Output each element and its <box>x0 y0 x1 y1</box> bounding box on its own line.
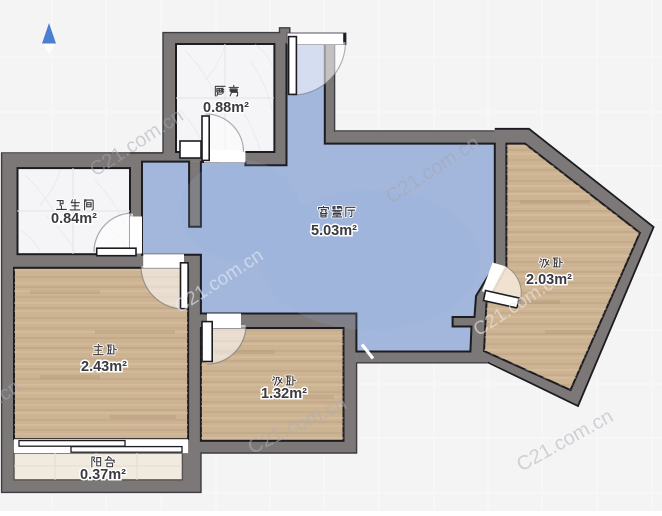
svg-text:0.84m²: 0.84m² <box>51 211 97 227</box>
svg-text:2.43m²: 2.43m² <box>81 359 127 375</box>
svg-text:2.03m²: 2.03m² <box>526 272 572 288</box>
svg-text:5.03m²: 5.03m² <box>311 223 357 239</box>
svg-text:1.32m²: 1.32m² <box>261 386 307 402</box>
svg-text:0.37m²: 0.37m² <box>80 467 126 483</box>
svg-text:0.88m²: 0.88m² <box>203 100 249 116</box>
